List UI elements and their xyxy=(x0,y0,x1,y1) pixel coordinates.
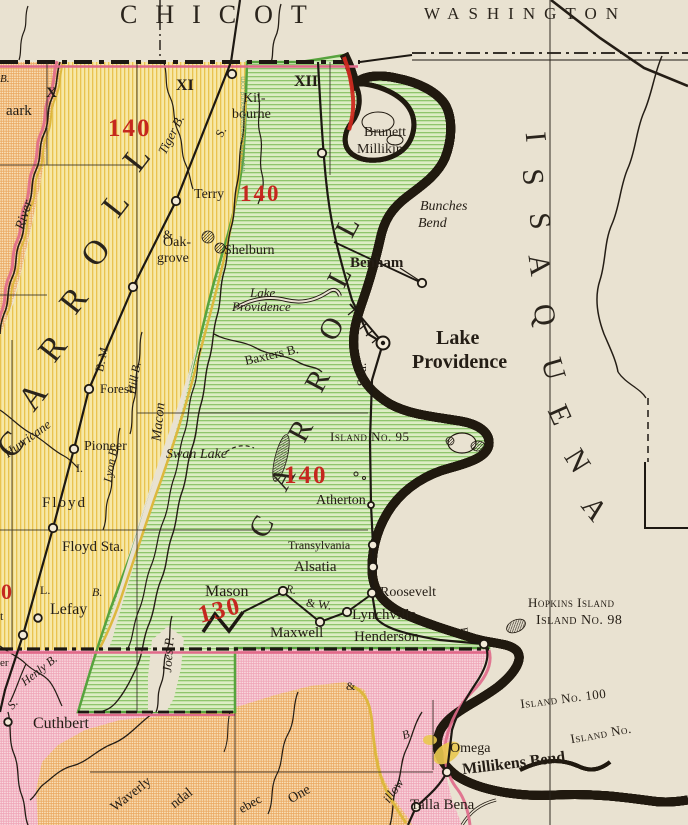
issaquena-letter: A xyxy=(522,252,555,278)
town-brunett-millikin: Brunett xyxy=(364,126,406,140)
water-lake-providence-lake: Providence xyxy=(232,300,291,313)
issaquena-letter: Q xyxy=(527,302,560,329)
town-cuthbert: Cuthbert xyxy=(33,716,89,732)
town-aark-partial: aark xyxy=(6,104,32,119)
water-bunches-bend: Bunches xyxy=(420,200,467,214)
township-figure-partial: 0 xyxy=(1,581,14,603)
town-lake-providence: Lake xyxy=(436,328,479,348)
watermark: www.MyGenealogyHound.com xyxy=(240,76,247,172)
label-l: L. xyxy=(40,584,50,596)
island-no-95: Island No. 95 xyxy=(330,430,409,443)
town-transylvania: Transylvania xyxy=(288,539,350,551)
town-maxwell: Maxwell xyxy=(270,626,323,641)
town-talla-bena: Talla Bena xyxy=(410,798,474,813)
town-terry: Terry xyxy=(194,188,224,202)
vintage-parish-map: CHICOT WASHINGTON I S S A Q U E N A C A … xyxy=(0,0,688,825)
label-i: I. xyxy=(76,462,83,474)
town-mason: Mason xyxy=(205,584,249,600)
town-partial-t: t xyxy=(0,610,3,622)
omega-sandbar-2 xyxy=(423,735,437,745)
railroad-r-henderson: R xyxy=(458,627,469,635)
town-lake-providence: Providence xyxy=(412,352,507,372)
county-washington: WASHINGTON xyxy=(424,5,627,22)
issaquena-letter: S xyxy=(524,211,556,231)
railroad-sou: Sou. xyxy=(355,363,368,386)
town-floyd-sta: Floyd Sta. xyxy=(62,540,124,555)
issaquena-letter: S xyxy=(517,167,548,186)
town-alsatia: Alsatia xyxy=(294,560,337,575)
water-b-lefay: B. xyxy=(92,586,102,598)
water-swan-lake: Swan Lake xyxy=(166,448,227,462)
range-numeral-x: X xyxy=(46,86,57,101)
island-no-98: Island No. 98 xyxy=(536,614,622,628)
town-floyd: Floyd xyxy=(42,496,87,511)
water-bunches-bend: Bend xyxy=(418,217,447,231)
town-lefay: Lefay xyxy=(50,602,87,618)
railroad-and-w: & W. xyxy=(305,596,332,611)
town-shelburn: Shelburn xyxy=(224,244,275,258)
town-benham: Benham xyxy=(350,256,403,271)
county-chicot: CHICOT xyxy=(120,2,325,28)
town-brunett-millikin: Millikin xyxy=(357,143,403,157)
town-roosevelt: Roosevelt xyxy=(380,586,436,600)
water-joes-pond: Joes P. xyxy=(160,636,175,673)
township-figure-140: 140 xyxy=(284,463,328,488)
town-oak-grove: grove xyxy=(157,252,189,266)
town-henderson: Henderson xyxy=(354,630,419,645)
town-omega: Omega xyxy=(450,742,490,756)
water-lake-providence-lake: Lake xyxy=(250,286,275,299)
range-numeral-xi: XI xyxy=(176,78,194,94)
town-lynchville: Lynchville xyxy=(352,608,416,623)
railroad-ampersand: & xyxy=(163,228,173,241)
town-partial-er: er xyxy=(0,658,9,669)
town-atherton: Atherton xyxy=(316,494,366,508)
railroad-ampersand: & xyxy=(346,680,355,692)
township-figure-140: 140 xyxy=(108,116,152,141)
township-figure-140: 140 xyxy=(240,182,281,205)
town-kilbourne: bourne xyxy=(232,108,271,122)
island-hopkins: Hopkins Island xyxy=(528,596,614,609)
water-b-top: B. xyxy=(0,74,9,85)
lake-providence-junction-dot xyxy=(381,341,385,345)
range-numeral-xii: XII xyxy=(294,74,318,90)
